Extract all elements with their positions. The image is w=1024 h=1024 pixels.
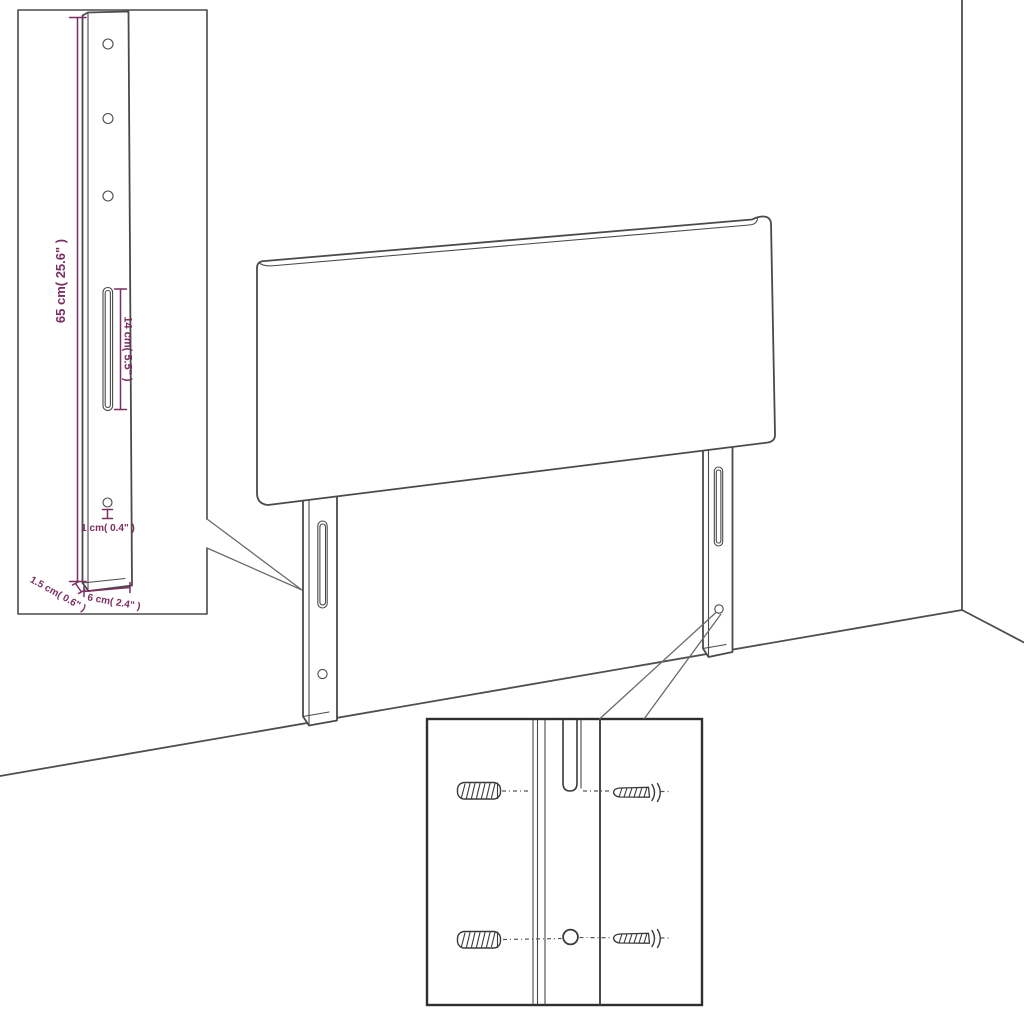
hardware-detail-box-border — [427, 719, 702, 1005]
left-callout-lines — [207, 519, 302, 590]
wall-anchor-icon-top — [458, 783, 501, 800]
leg-section-slot — [563, 720, 577, 791]
dimension-leg-height-label: 65 cm( 25.6" ) — [53, 239, 68, 323]
floor-line-left — [0, 610, 962, 776]
dimension-hole-diameter-label: 1 cm( 0.4" ) — [81, 523, 135, 534]
dash-anchor-to-hole — [503, 939, 562, 940]
headboard-panel — [257, 216, 775, 505]
headboard-diagram: 65 cm( 25.6" ) 14 cm( 5.5" ) 1 cm( 0.4" … — [0, 0, 1024, 1024]
hardware-detail-box — [427, 719, 702, 1005]
wall-anchor-icon-bottom — [458, 932, 501, 949]
alignment-dashed-lines — [502, 791, 670, 940]
headboard-right-leg — [703, 442, 733, 657]
right-callout-left-line — [600, 612, 717, 719]
enlarged-leg-body — [83, 12, 133, 592]
leg-section-hole — [563, 930, 578, 945]
right-leg-body — [703, 442, 733, 657]
dimension-slot-length-label: 14 cm( 5.5" ) — [122, 316, 134, 381]
enlarged-leg — [83, 12, 133, 592]
hardware-leg-section — [533, 720, 600, 1004]
wall-anchor-bottom-body — [458, 932, 501, 949]
wall-anchor-top-body — [458, 783, 501, 800]
screw-icon-bottom — [614, 930, 661, 948]
leg-detail-box: 65 cm( 25.6" ) 14 cm( 5.5" ) 1 cm( 0.4" … — [18, 10, 207, 614]
screw-bottom-head — [652, 930, 660, 948]
panel-outline — [257, 216, 775, 505]
screw-icon-top — [614, 784, 661, 802]
diagram-canvas: 65 cm( 25.6" ) 14 cm( 5.5" ) 1 cm( 0.4" … — [0, 0, 1024, 1024]
screw-top-head — [652, 784, 660, 802]
right-callout-right-line — [644, 614, 721, 719]
leg-section-left-edges — [533, 720, 545, 1004]
floor-line-right — [962, 610, 1024, 643]
headboard-left-leg — [303, 495, 337, 726]
